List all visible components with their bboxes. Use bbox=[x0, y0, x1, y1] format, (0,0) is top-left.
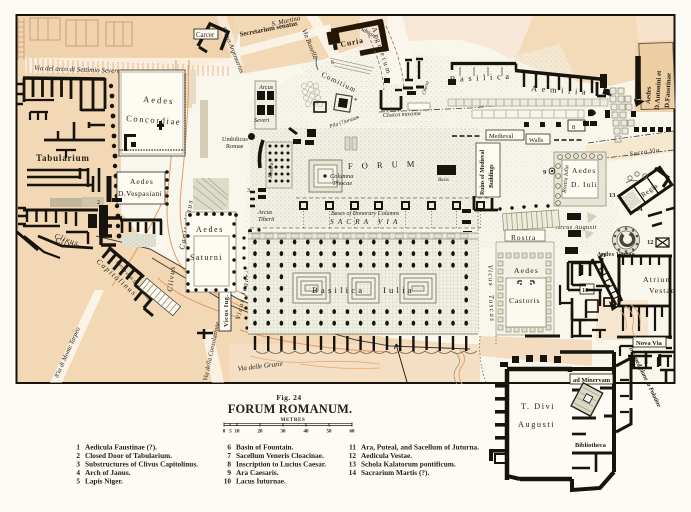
svg-text:Augusti: Augusti bbox=[518, 420, 555, 429]
svg-text:Aedes: Aedes bbox=[130, 177, 154, 186]
svg-text:20: 20 bbox=[258, 430, 264, 435]
svg-text:30: 30 bbox=[281, 430, 287, 435]
svg-text:SACRA VIA: SACRA VIA bbox=[330, 217, 401, 226]
svg-text:14: 14 bbox=[636, 206, 643, 213]
svg-text:Aedes: Aedes bbox=[572, 166, 596, 175]
svg-text:Lapis Niger.: Lapis Niger. bbox=[85, 477, 123, 486]
svg-text:*: * bbox=[354, 97, 358, 105]
svg-text:Carcer: Carcer bbox=[196, 32, 215, 39]
svg-text:T. Divi: T. Divi bbox=[521, 402, 555, 411]
svg-text:Rostra: Rostra bbox=[511, 233, 536, 242]
svg-text:Medieval: Medieval bbox=[489, 133, 513, 140]
svg-text:Castoris: Castoris bbox=[509, 296, 540, 305]
svg-text:13: 13 bbox=[609, 192, 615, 199]
svg-text:9: 9 bbox=[543, 169, 546, 176]
svg-text:2: 2 bbox=[97, 200, 100, 206]
svg-text:Severi: Severi bbox=[254, 117, 270, 124]
svg-text:60: 60 bbox=[350, 430, 356, 435]
svg-text:Umbilicus: Umbilicus bbox=[222, 136, 248, 143]
svg-text:Aedes: Aedes bbox=[514, 266, 539, 275]
svg-text:12: 12 bbox=[647, 239, 653, 246]
svg-text:Vicus Iug.: Vicus Iug. bbox=[223, 295, 230, 327]
svg-text:Walls: Walls bbox=[529, 137, 544, 144]
svg-text:3: 3 bbox=[247, 188, 250, 194]
svg-text:Tabularium: Tabularium bbox=[36, 153, 90, 163]
svg-text:Bases of Honorary Columns: Bases of Honorary Columns bbox=[331, 210, 400, 217]
svg-text:METRES: METRES bbox=[281, 418, 306, 423]
svg-text:FORUM ROMANUM.: FORUM ROMANUM. bbox=[228, 402, 353, 416]
svg-text:Columna: Columna bbox=[330, 173, 353, 180]
svg-text:Basis: Basis bbox=[438, 178, 449, 183]
svg-text:Atrium: Atrium bbox=[643, 275, 673, 284]
svg-text:Buildings: Buildings bbox=[489, 164, 495, 188]
svg-text:Romae: Romae bbox=[226, 143, 244, 150]
svg-text:Arcus Augusti: Arcus Augusti bbox=[555, 224, 597, 231]
svg-text:Tiberii: Tiberii bbox=[258, 216, 275, 223]
svg-text:D. Iuli: D. Iuli bbox=[571, 180, 597, 189]
svg-text:Vestae: Vestae bbox=[649, 286, 675, 295]
svg-text:40: 40 bbox=[304, 430, 310, 435]
svg-text:Vicus: Vicus bbox=[486, 265, 495, 287]
svg-text:Aedes: Aedes bbox=[645, 86, 653, 104]
svg-text:Lacus Iuturnae.: Lacus Iuturnae. bbox=[236, 477, 286, 486]
svg-text:Fig. 24: Fig. 24 bbox=[276, 393, 301, 402]
svg-text:10: 10 bbox=[235, 430, 241, 435]
svg-text:Tuscus: Tuscus bbox=[487, 295, 496, 323]
svg-text:Phocae: Phocae bbox=[332, 180, 352, 187]
svg-text:Arcus: Arcus bbox=[257, 209, 273, 216]
svg-text:14: 14 bbox=[349, 468, 357, 477]
svg-text:10: 10 bbox=[224, 477, 232, 486]
svg-text:Nova Via: Nova Via bbox=[636, 340, 663, 347]
svg-text:6: 6 bbox=[331, 60, 334, 66]
svg-text:Ruins of Medieval: Ruins of Medieval bbox=[480, 150, 486, 195]
svg-text:ad Minervam: ad Minervam bbox=[573, 377, 611, 384]
svg-text:Basilica: Basilica bbox=[312, 285, 365, 295]
svg-text:Bibliotheca: Bibliotheca bbox=[575, 442, 607, 449]
svg-text:Sacrarium Martis (?).: Sacrarium Martis (?). bbox=[361, 468, 429, 477]
svg-text:D.Vespasiani: D.Vespasiani bbox=[118, 189, 162, 198]
svg-text:Arcus: Arcus bbox=[258, 84, 274, 91]
svg-text:5: 5 bbox=[76, 477, 80, 486]
svg-text:*: * bbox=[356, 115, 360, 123]
svg-text:Saturni: Saturni bbox=[190, 253, 223, 262]
svg-text:Aedes: Aedes bbox=[196, 225, 224, 234]
svg-text:50: 50 bbox=[327, 430, 333, 435]
svg-text:Iulia: Iulia bbox=[383, 285, 415, 295]
